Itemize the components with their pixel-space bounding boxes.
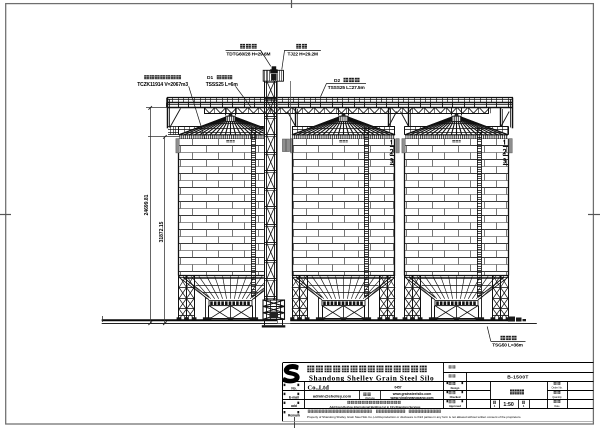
svg-text:E-mail: E-mail [289,395,299,399]
svg-text:Shandong Shelley Grain Steel S: Shandong Shelley Grain Steel Silo [309,374,434,383]
svg-text:Remark: Remark [288,414,300,418]
svg-text:TSSS25 L=6m: TSSS25 L=6m [206,82,239,88]
svg-text:Property of Shandong Shelley G: Property of Shandong Shelley Grain Steel… [307,415,521,419]
svg-text:D1: D1 [207,75,213,81]
svg-text:B-1500T: B-1500T [507,374,528,380]
svg-text:Add:Coun,Dezhou,International: Add:Coun,Dezhou,International Building,1… [330,405,421,409]
svg-text:TDTG60/28 H=29.6M: TDTG60/28 H=29.6M [226,51,270,57]
svg-text:add: add [291,404,297,408]
svg-text:Design: Design [451,386,460,390]
svg-text:Date: Date [554,405,560,408]
svg-text:Order No.: Order No. [552,387,563,390]
svg-text:No.: No. [291,386,296,390]
svg-text:Checked: Checked [450,395,461,399]
svg-text:TCZK11914 V=2067m3: TCZK11914 V=2067m3 [137,82,188,88]
svg-text:TJ22 H=29.2M: TJ22 H=29.2M [287,51,318,57]
svg-text:Approved: Approved [449,404,462,408]
svg-text:www.yinglewangcang.com: www.yinglewangcang.com [389,396,433,400]
svg-text:TSSS25 L=27.5m: TSSS25 L=27.5m [328,85,365,91]
svg-text:admin@shelley.com: admin@shelley.com [313,393,352,398]
svg-text:1:50: 1:50 [503,402,513,408]
svg-text:Co.,Ltd: Co.,Ltd [308,384,330,391]
svg-text:24699.81: 24699.81 [144,194,150,215]
svg-text:31872.15: 31872.15 [159,221,165,242]
svg-text:0457: 0457 [394,385,401,389]
svg-text:Quantity: Quantity [552,396,562,399]
svg-text:Website: Website [365,396,375,400]
svg-text:TSG50 L=36m: TSG50 L=36m [492,343,523,349]
